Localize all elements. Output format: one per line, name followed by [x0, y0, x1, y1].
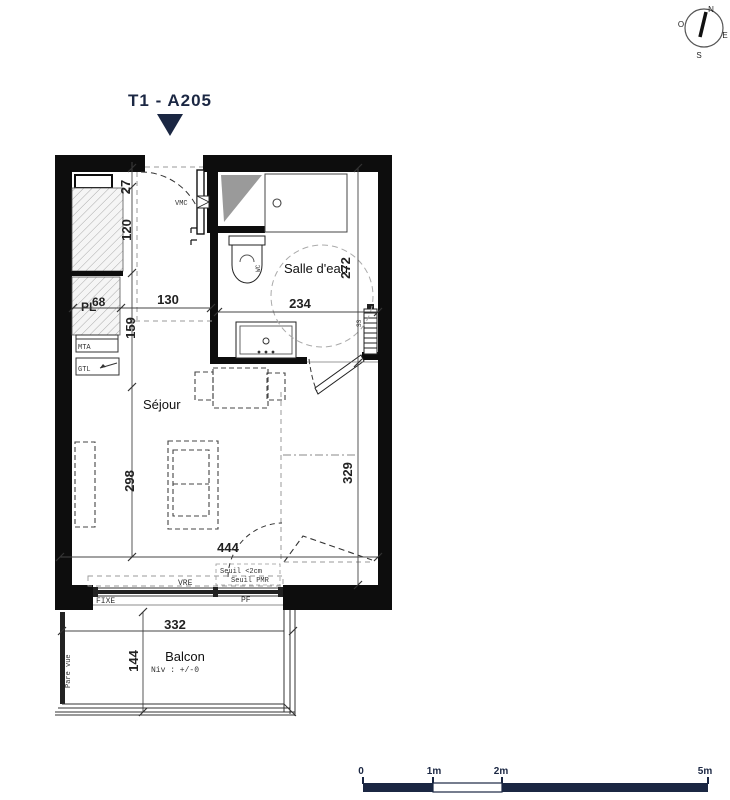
dim-130: 130 [157, 292, 179, 307]
compass-east: E [722, 31, 727, 40]
wall-top-right [203, 155, 392, 172]
compass-north: N [708, 5, 714, 14]
gtl-label: GTL [78, 366, 91, 374]
window-jamb-right [278, 587, 283, 597]
chair-right-furniture [267, 373, 285, 400]
dim-234: 234 [289, 296, 311, 311]
chair-left-furniture [195, 372, 213, 400]
window-jamb-left [93, 587, 98, 597]
wall-bottom-right [283, 585, 392, 610]
compass-south: S [696, 51, 701, 60]
toilet-bowl [232, 245, 262, 283]
wall-right [378, 172, 392, 585]
bathroom-door-swing [309, 359, 317, 391]
scale-segment-light [433, 783, 502, 792]
compass-west: O [678, 20, 684, 29]
vmc-symbol-icon [197, 196, 209, 208]
dim-298: 298 [122, 470, 137, 492]
vmc-label: VMC [175, 200, 188, 208]
threshold-label-1: Seuil <2cm [220, 568, 262, 576]
dim-272: 272 [338, 257, 353, 279]
sideboard-furniture [75, 442, 95, 527]
living-label: Séjour [143, 397, 181, 412]
armchair-inner [173, 450, 209, 516]
wall-left [55, 172, 72, 610]
wall-top-left [55, 155, 145, 172]
shower-shading [221, 175, 262, 222]
wc-label: WC [255, 264, 262, 272]
wall-shower-bottom [218, 226, 265, 233]
shutter-label: VRE [178, 579, 193, 588]
floor-plan-page: T1 - A205 N O E S PL 68 MTA GTL [0, 0, 730, 800]
compass-rose-icon: N O E S [678, 5, 728, 60]
title-block: T1 - A205 [128, 91, 212, 136]
dim-329: 329 [340, 462, 355, 484]
vanity-dot [265, 351, 268, 354]
balcony-level-label: Niv : +/-0 [151, 666, 199, 675]
entry-door-swing [141, 172, 203, 234]
scale-2m: 2m [494, 766, 509, 777]
scale-0: 0 [358, 766, 364, 777]
mta-label: MTA [78, 344, 91, 352]
entry-door-handle [191, 228, 197, 245]
wall-bottom-left [55, 585, 93, 610]
shower-tray [265, 174, 347, 232]
unit-marker-triangle-icon [157, 114, 183, 136]
scale-5m: 5m [698, 766, 713, 777]
unit-title: T1 - A205 [128, 91, 212, 110]
scale-segment-dark-1 [363, 783, 433, 792]
dim-144: 144 [126, 649, 141, 671]
scale-1m: 1m [427, 766, 442, 777]
french-window-label: PF [241, 596, 251, 605]
window-mullion [213, 587, 218, 597]
dim-332: 332 [164, 617, 186, 632]
window-glazing [97, 590, 278, 594]
window-opening-zigzag [284, 536, 372, 562]
toilet-tank [229, 236, 265, 245]
dim-120: 120 [119, 219, 134, 241]
dim-444: 444 [217, 540, 239, 555]
armchair-furniture [168, 441, 218, 529]
scale-segment-dark-2 [502, 783, 708, 792]
dim-27: 27 [118, 180, 133, 194]
table-furniture [213, 368, 268, 408]
shaft-divider [72, 271, 123, 276]
compass-needle [700, 12, 706, 37]
threshold-label-2: Seuil PMR [231, 577, 270, 585]
radiator-cap-top [367, 304, 374, 309]
privacy-screen-label: Pare vue [65, 654, 73, 688]
dim-159: 159 [123, 317, 138, 339]
closet-width-dim: 68 [92, 295, 106, 309]
technical-zone: PL 68 MTA GTL [72, 175, 123, 375]
shaft-hatched-upper [72, 188, 123, 271]
wall-bathroom-left [210, 233, 218, 357]
towel-radiator-label: SS [356, 319, 363, 327]
bathroom-door-leaf [315, 355, 364, 394]
vanity-dot [258, 351, 261, 354]
window-band: Seuil <2cm Seuil PMR VRE FIXE PF [88, 564, 283, 606]
balcony-label: Balcon [165, 649, 205, 664]
vanity-dot [272, 351, 275, 354]
fixed-window-label: FIXE [96, 597, 115, 606]
wall-niche [75, 175, 112, 188]
scale-bar: 0 1m 2m 5m [358, 766, 712, 792]
